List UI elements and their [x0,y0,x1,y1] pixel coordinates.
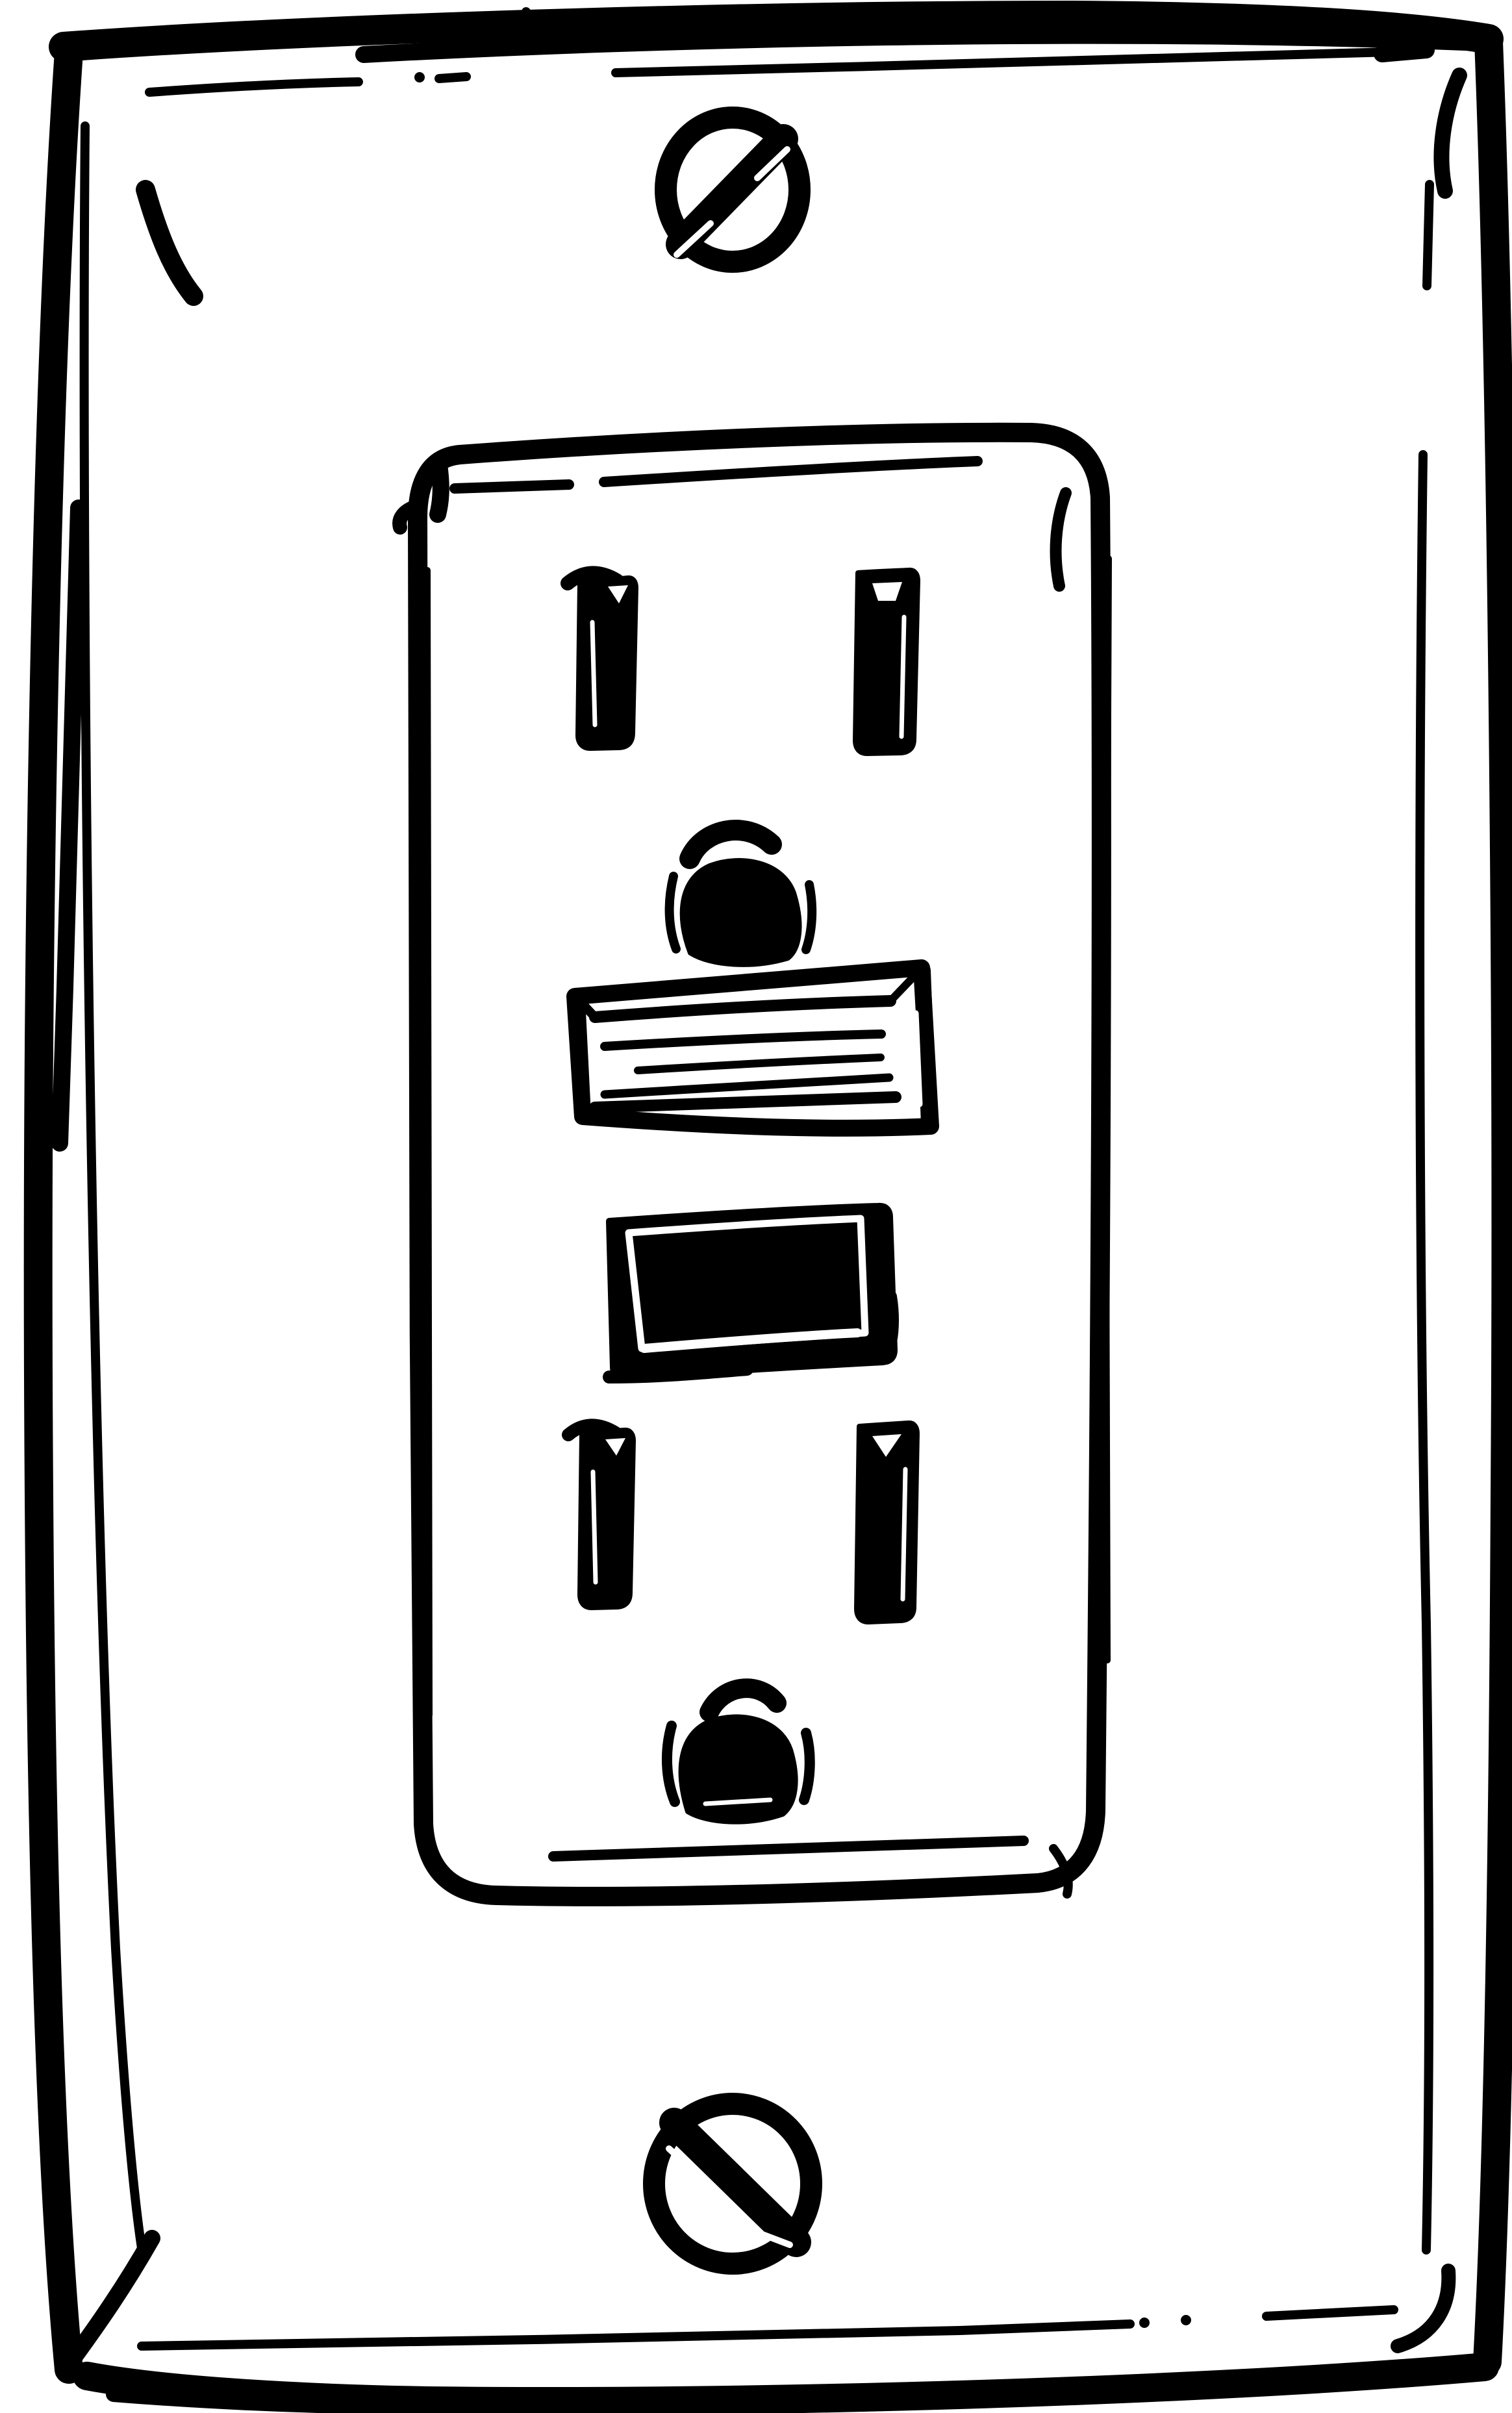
bevel-top-dash [439,77,466,79]
wall-plate-bottom-edge [87,2367,1485,2401]
reset-button-left-cap [577,999,583,1115]
lower-ground-whisker-left [667,1726,675,1802]
outlet-face-top-accent-dash [455,485,569,488]
upper-left-prong-slot [578,578,636,748]
outlet-face-right-inner-line [1106,559,1109,1660]
reset-button-bevel-bottom [595,1097,896,1107]
wall-plate-right-edge [1487,42,1506,2362]
test-button-bottom-overstroke [609,1369,747,1377]
test-button [609,1206,894,1378]
lower-right-slot-highlight [903,1469,905,1599]
reset-button-sketch-line-3 [605,1078,889,1094]
lower-ground-whisker-right [804,1733,810,1800]
bevel-top-segment-left [149,82,359,92]
bevel-top-segment-right [616,52,1390,73]
reset-button-right-highlight [916,1013,920,1104]
mounting-screw-bottom [654,2104,811,2264]
bevel-bottom-segment-left [142,2324,1130,2346]
outlet-face [399,433,1109,1897]
bevel-right-dash [1427,184,1430,286]
wall-plate-corner-hook-top-right [1441,75,1459,191]
sketch-canvas: Hand-drawn electrical outlet sketch [0,0,1512,2413]
bevel-bottom-dot-1 [1139,2318,1150,2328]
outlet-face-bottom-accent-line [553,1841,1024,1856]
outlet-face-outline [417,433,1101,1897]
reset-button-sketch-line-1 [605,1034,881,1046]
outlet-face-top-accent-line [604,461,977,482]
reset-button-sketch-line-2 [638,1057,881,1070]
wall-plate-corner-hook-top-left [145,190,194,296]
plate-bevel [84,50,1430,2346]
reset-button-bevel-top [595,1001,890,1017]
lower-left-prong-slot [580,1430,633,1608]
upper-ground-arc [690,830,772,859]
bevel-bottom-dot-2 [1181,2315,1191,2325]
upper-ground-whisker-right [806,885,812,950]
upper-left-slot-highlight [592,622,595,725]
reset-button-right-cap [923,970,929,1124]
outlet-face-top-right-hook [1056,493,1066,586]
bevel-left-segment [84,126,144,2260]
lower-left-slot-highlight [593,1472,596,1582]
upper-ground-hole [683,861,800,965]
reset-button [575,968,931,1128]
mounting-screw-top [666,118,800,262]
outlet-face-left-inner-line [427,570,429,1715]
test-button-right-cap [891,1296,893,1342]
wall-plate-left-overstroke [60,508,79,1143]
outlet-illustration: Hand-drawn electrical outlet sketch [0,0,1512,2413]
bevel-bottom-segment-right [1266,2310,1394,2316]
bevel-right-segment [1420,455,1429,2250]
wall-plate-left-edge [38,52,69,2369]
bevel-top-fat-end [1382,50,1426,54]
upper-receptacle [568,570,918,965]
lower-ground-arc [709,1688,777,1712]
lower-receptacle [568,1423,917,1822]
bevel-top-dot [414,72,425,82]
upper-right-slot-highlight [901,617,904,737]
lower-ground-hole [681,1717,796,1821]
wall-plate-corner-hook-bottom-right [1398,2271,1448,2346]
outlet-face-top-left-hook [438,465,441,514]
upper-ground-whisker-left [670,876,676,949]
